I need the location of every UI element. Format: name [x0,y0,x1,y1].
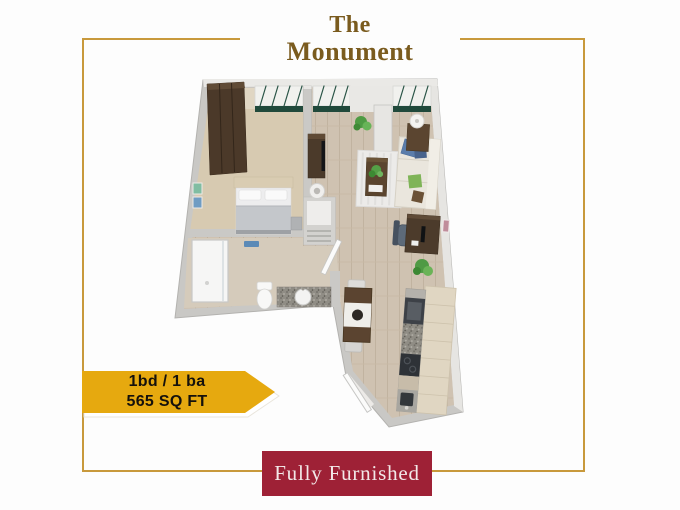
furnished-banner: Fully Furnished [262,451,432,496]
bedside-bench [291,217,302,230]
page: { "page": { "background_color": "#fdfdfd… [0,0,680,510]
unit-beds-baths: 1bd / 1 ba [129,372,206,392]
pillow-green [408,174,422,188]
unit-sqft: 565 SQ FT [127,392,208,412]
unit-info-text: 1bd / 1 ba 565 SQ FT [82,371,252,413]
round-stool [310,184,325,199]
tv-stand [308,134,325,178]
title-line-1: The [240,12,460,38]
furnished-banner-label: Fully Furnished [274,461,420,486]
dining-area [343,280,372,353]
bed [234,177,293,234]
sink-vanity [277,287,331,307]
base-cabinet [398,375,419,391]
title-line-2: Monument [240,38,460,66]
towel-rack [244,241,259,247]
wardrobe [207,82,247,175]
kitchen [396,284,456,415]
coffee-table [365,158,387,197]
cooktop [399,353,421,377]
shower [192,240,228,302]
toilet [257,282,272,309]
pillow-brown [411,190,424,203]
kitchen-sink [396,389,418,413]
page-title: The Monument [240,8,460,74]
oven [403,297,425,324]
granite-counter [401,323,423,354]
shelf-closet [304,197,336,245]
unit-info-ribbon: 1bd / 1 ba 565 SQ FT [80,367,288,421]
windows [255,86,431,112]
wall-art-right [443,220,450,232]
